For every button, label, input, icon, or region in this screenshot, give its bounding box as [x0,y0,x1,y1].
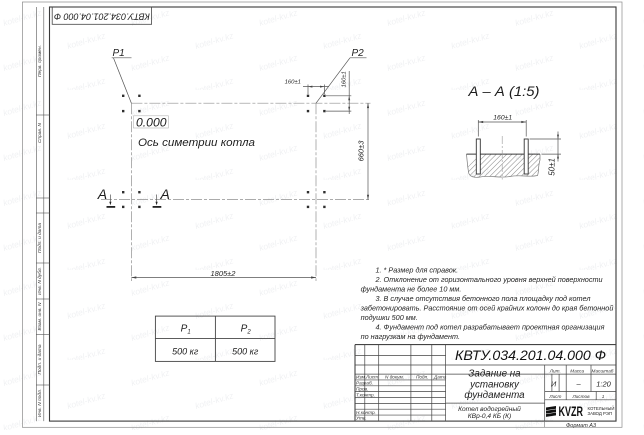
svg-text:подушки 500 мм.: подушки 500 мм. [361,313,418,322]
svg-text:P1: P1 [113,48,125,59]
svg-text:Инв. N подл.: Инв. N подл. [37,389,43,417]
svg-text:Разраб.: Разраб. [356,381,373,386]
svg-text:50±1: 50±1 [547,158,556,176]
svg-text:Листов: Листов [571,394,590,399]
svg-text:160±1: 160±1 [493,114,512,121]
svg-text:И: И [551,380,557,389]
svg-text:установку: установку [469,379,520,390]
svg-text:Подп. и дата: Подп. и дата [37,344,43,374]
svg-text:Подп. и дата: Подп. и дата [37,223,43,253]
svg-text:Ось симетрии котла: Ось симетрии котла [138,137,255,149]
svg-text:Формат А3: Формат А3 [566,423,597,429]
svg-text:1805±2: 1805±2 [211,269,237,278]
svg-text:–: – [576,379,582,388]
svg-text:Подп.: Подп. [416,375,428,380]
svg-text:А – А (1:5): А – А (1:5) [467,84,539,99]
svg-text:4. Фундамент под котел разраба: 4. Фундамент под котел разрабатывает про… [376,323,605,332]
svg-text:КВр-0,4 КБ (К): КВр-0,4 КБ (К) [468,413,511,420]
svg-text:Задание на: Задание на [468,368,521,379]
svg-text:А: А [97,186,107,202]
svg-text:3. В случае отсутствия бетонно: 3. В случае отсутствия бетонного пола пл… [376,294,591,303]
svg-text:0.000: 0.000 [136,115,167,129]
svg-text:Масса: Масса [570,368,584,373]
svg-text:ЗАВОД РЭП: ЗАВОД РЭП [588,411,613,416]
svg-text:500 кг: 500 кг [172,347,199,357]
svg-text:1. * Размер для справок.: 1. * Размер для справок. [376,266,459,275]
svg-text:фундамента не более 10 мм.: фундамента не более 10 мм. [361,285,462,294]
svg-text:2. Отклонение от горизонтально: 2. Отклонение от горизонтального уровня … [375,275,603,284]
svg-text:Н.контр.: Н.контр. [356,410,376,415]
svg-text:KVZR: KVZR [559,404,584,419]
svg-text:1:20: 1:20 [596,380,611,389]
svg-text:Перв. примен.: Перв. примен. [37,45,43,77]
svg-text:Дата: Дата [433,375,447,380]
svg-text:N докум.: N докум. [385,375,404,380]
svg-text:Масштаб: Масштаб [592,368,614,373]
svg-text:Котел водогрейный: Котел водогрейный [458,405,521,413]
svg-text:Инв. N дубл.: Инв. N дубл. [37,267,43,295]
svg-text:1: 1 [187,330,190,336]
svg-text:Утв.: Утв. [356,416,367,421]
svg-text:2: 2 [246,330,251,336]
svg-text:Лит.: Лит. [549,368,561,373]
svg-text:160±1: 160±1 [285,80,301,86]
svg-text:P2: P2 [352,48,365,59]
svg-text:660±3: 660±3 [357,140,366,162]
svg-text:по нагрузкам на фундамент.: по нагрузкам на фундамент. [361,332,460,341]
svg-text:1: 1 [602,394,605,399]
svg-text:А: А [160,186,170,202]
svg-text:КВТУ.034.201.04.000 Ф: КВТУ.034.201.04.000 Ф [455,347,606,363]
svg-text:Пров.: Пров. [356,386,368,391]
svg-text:фундамента: фундамента [464,390,525,401]
svg-text:Справ. N: Справ. N [37,122,43,143]
svg-text:Т.контр.: Т.контр. [356,392,375,397]
svg-text:Изм.Лист: Изм.Лист [356,375,378,380]
svg-text:забетонировать. Расстояние от: забетонировать. Расстояние от осей крайн… [360,304,614,313]
svg-text:КВТУ.034.201.04.000 Ф: КВТУ.034.201.04.000 Ф [54,11,150,21]
svg-text:500 кг: 500 кг [232,347,259,357]
svg-text:Лист: Лист [548,394,561,399]
svg-text:Взам. инв. N: Взам. инв. N [37,302,43,330]
svg-text:160±1: 160±1 [342,71,348,87]
